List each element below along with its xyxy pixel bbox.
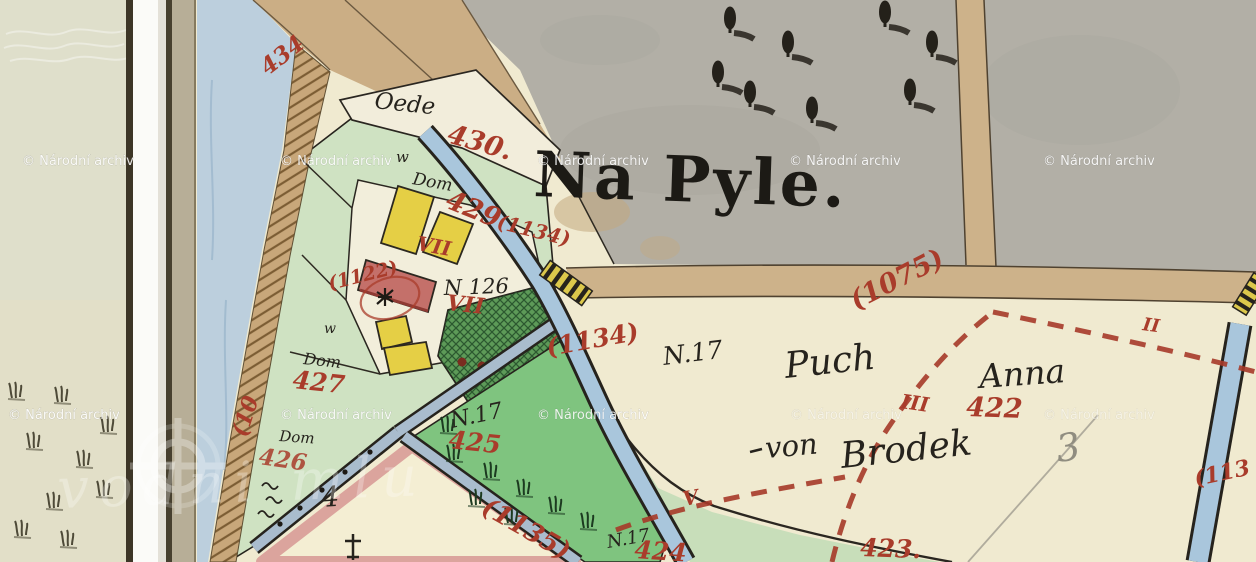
parcel-424: 424 [634,535,688,562]
archive-watermark: © Národní archiv [789,154,901,169]
portal-watermark-text: vodni mlu [56,444,428,522]
archive-watermark: © Národní archiv [280,154,392,169]
parcel-423: 423. [860,533,922,562]
parcel-422: 422 [966,392,1023,425]
archive-watermark: © Národní archiv [1043,154,1155,169]
archive-watermark: © Národní archiv [8,408,120,423]
orchard-tree-mark [458,358,467,367]
w-mark-lower: w [324,321,336,337]
dom-label-lower: Dom [278,427,315,447]
parcel-425: 425 [447,425,502,459]
archive-watermark: © Národní archiv [22,154,134,169]
parcel-427: 427 [291,365,347,399]
archive-watermark: © Národní archiv [790,408,902,423]
map-canvas: Na Pyle. Oede w Dom N 126 w Dom Dom N.17… [0,0,1256,562]
place-name-title: Na Pyle. [532,137,849,222]
archive-watermark: © Národní archiv [537,154,649,169]
scanned-cadastral-map: Na Pyle. Oede w Dom N 126 w Dom Dom N.17… [0,0,1256,562]
owner-given-name: Anna [975,351,1067,396]
owner-prefix: von [764,427,819,465]
roman-vii-lower: VII [445,290,486,320]
wooden-building [384,342,432,375]
roman-iii: III [898,389,931,417]
archive-watermark: © Národní archiv [537,408,649,423]
archive-watermark: © Národní archiv [1043,408,1155,423]
archive-watermark: © Národní archiv [280,408,392,423]
w-mark-upper: w [396,148,409,166]
roman-ii: II [1140,314,1161,337]
